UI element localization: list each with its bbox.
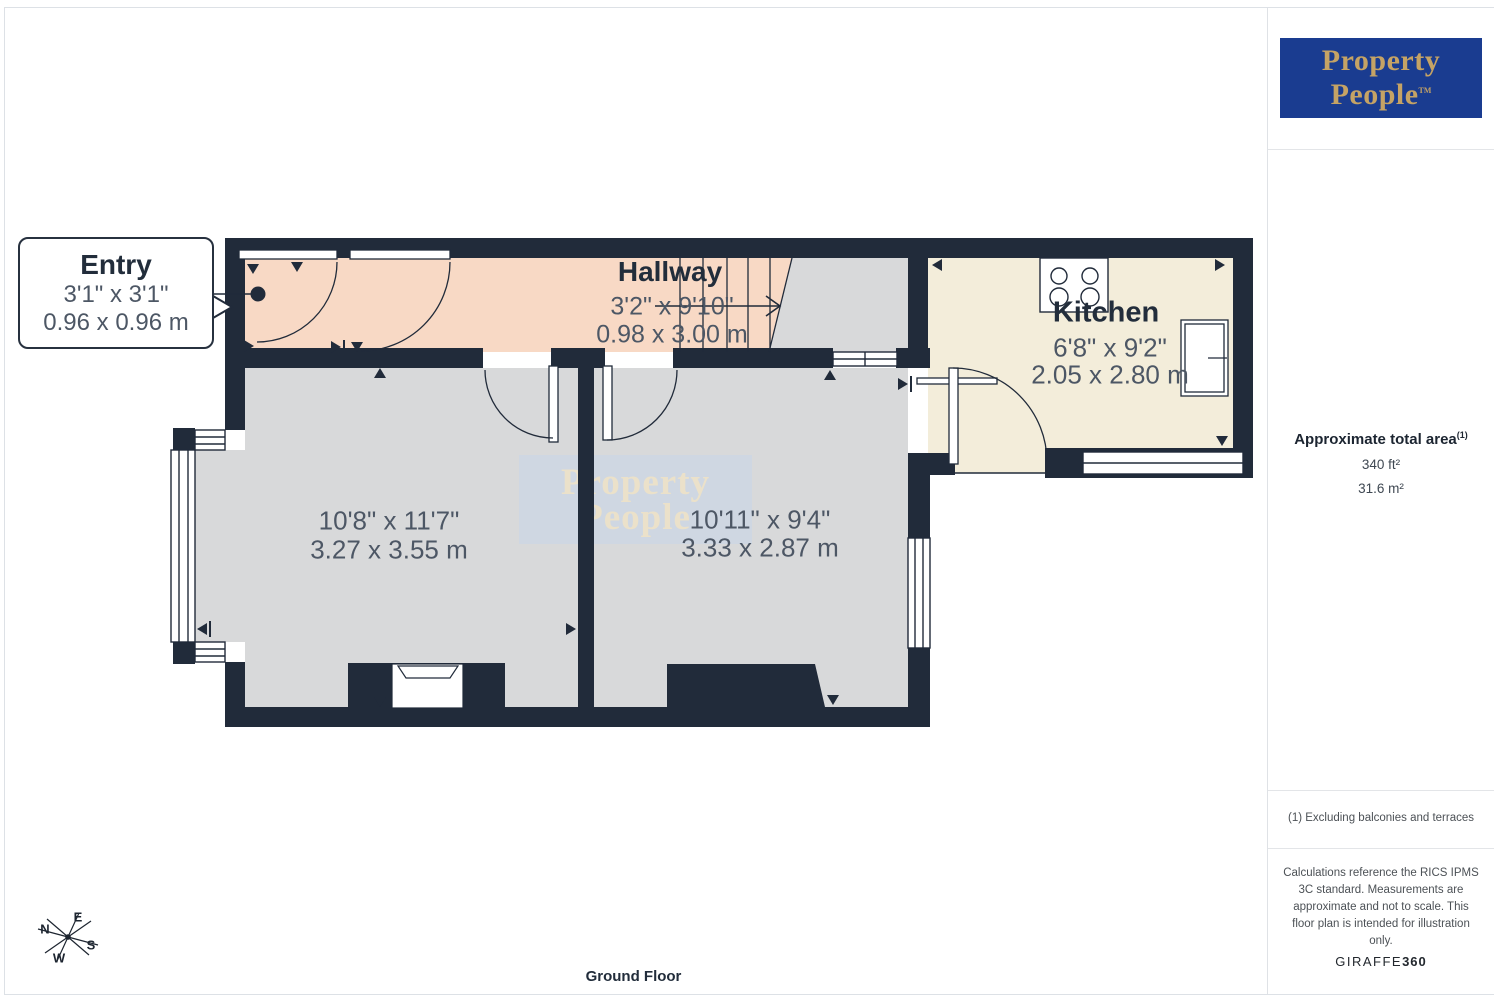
area-summary: Approximate total area(1) 340 ft² 31.6 m… (1268, 430, 1494, 496)
room2-window (908, 538, 930, 648)
structure-layer (0, 0, 1267, 1000)
wall-bottom (225, 707, 930, 727)
kitchen-dim-metric: 2.05 x 2.80 m (1031, 360, 1189, 391)
landing-internal-window (833, 352, 897, 366)
bay-post-bottom (173, 640, 195, 664)
entry-dim-metric: 0.96 x 0.96 m (43, 309, 188, 337)
hallway-dim-metric: 0.98 x 3.00 m (596, 321, 747, 350)
hallway-second-door (350, 250, 450, 351)
wall-hallway-3 (673, 348, 833, 368)
bay-post-top (173, 428, 195, 450)
bay-window (171, 430, 225, 662)
kitchen-door (917, 368, 1047, 464)
compass-s: S (87, 938, 96, 953)
logo-line1: Property (1322, 46, 1440, 76)
wall-right-upper (908, 475, 930, 538)
floor-title: Ground Floor (0, 968, 1267, 985)
trademark-symbol: TM (1419, 86, 1432, 95)
room1-door (485, 366, 558, 442)
compass-n: N (40, 922, 49, 937)
wall-kitchen-sw (908, 453, 955, 475)
stair-diagonal (769, 258, 792, 352)
room2-dim-metric: 3.33 x 2.87 m (681, 533, 839, 564)
floor-plan-canvas: Property People (0, 0, 1267, 1000)
wall-kitchen-right (1233, 238, 1253, 478)
sidebar-divider-1 (1268, 149, 1494, 150)
entry-point-dot (251, 287, 266, 302)
kitchen-window (1083, 452, 1243, 474)
area-footnote-ref: (1) (1457, 430, 1468, 440)
sidebar-divider-2 (1268, 790, 1494, 791)
property-people-logo: Property PeopleTM (1280, 38, 1482, 118)
info-sidebar: Property PeopleTM Approximate total area… (1267, 8, 1494, 994)
fireplace-room1 (392, 664, 463, 708)
room1-dim-imperial: 10'8" x 11'7" (319, 506, 460, 537)
entry-name: Entry (80, 249, 152, 281)
wall-landing-kitchen (908, 258, 928, 353)
room1-dim-metric: 3.27 x 3.55 m (310, 535, 468, 566)
room2-door (603, 366, 677, 440)
kitchen-name: Kitchen (1053, 297, 1159, 330)
hallway-dim-imperial: 3'2" x 9'10" (610, 293, 733, 322)
hallway-name: Hallway (618, 256, 722, 288)
compass-e: E (74, 910, 83, 925)
wall-right-lower (908, 648, 930, 727)
giraffe360-brand: GIRAFFE360 (1268, 954, 1494, 969)
area-sqft: 340 ft² (1268, 457, 1494, 472)
entry-dim-imperial: 3'1" x 3'1" (64, 281, 169, 309)
wall-between-rooms (578, 348, 594, 707)
footnote: (1) Excluding balconies and terraces (1268, 812, 1494, 824)
area-title: Approximate total area(1) (1268, 430, 1494, 448)
entry-callout: Entry 3'1" x 3'1" 0.96 x 0.96 m (18, 237, 214, 349)
compass-w: W (53, 951, 65, 966)
area-sqm: 31.6 m² (1268, 481, 1494, 496)
sidebar-divider-3 (1268, 848, 1494, 849)
logo-line2: PeopleTM (1331, 76, 1432, 110)
disclaimer: Calculations reference the RICS IPMS 3C … (1281, 865, 1481, 950)
wall-left-upper (225, 238, 245, 430)
room2-dim-imperial: 10'11" x 9'4" (690, 505, 831, 536)
chimney-breast-room2 (667, 664, 825, 707)
wall-hallway-2 (551, 348, 605, 368)
